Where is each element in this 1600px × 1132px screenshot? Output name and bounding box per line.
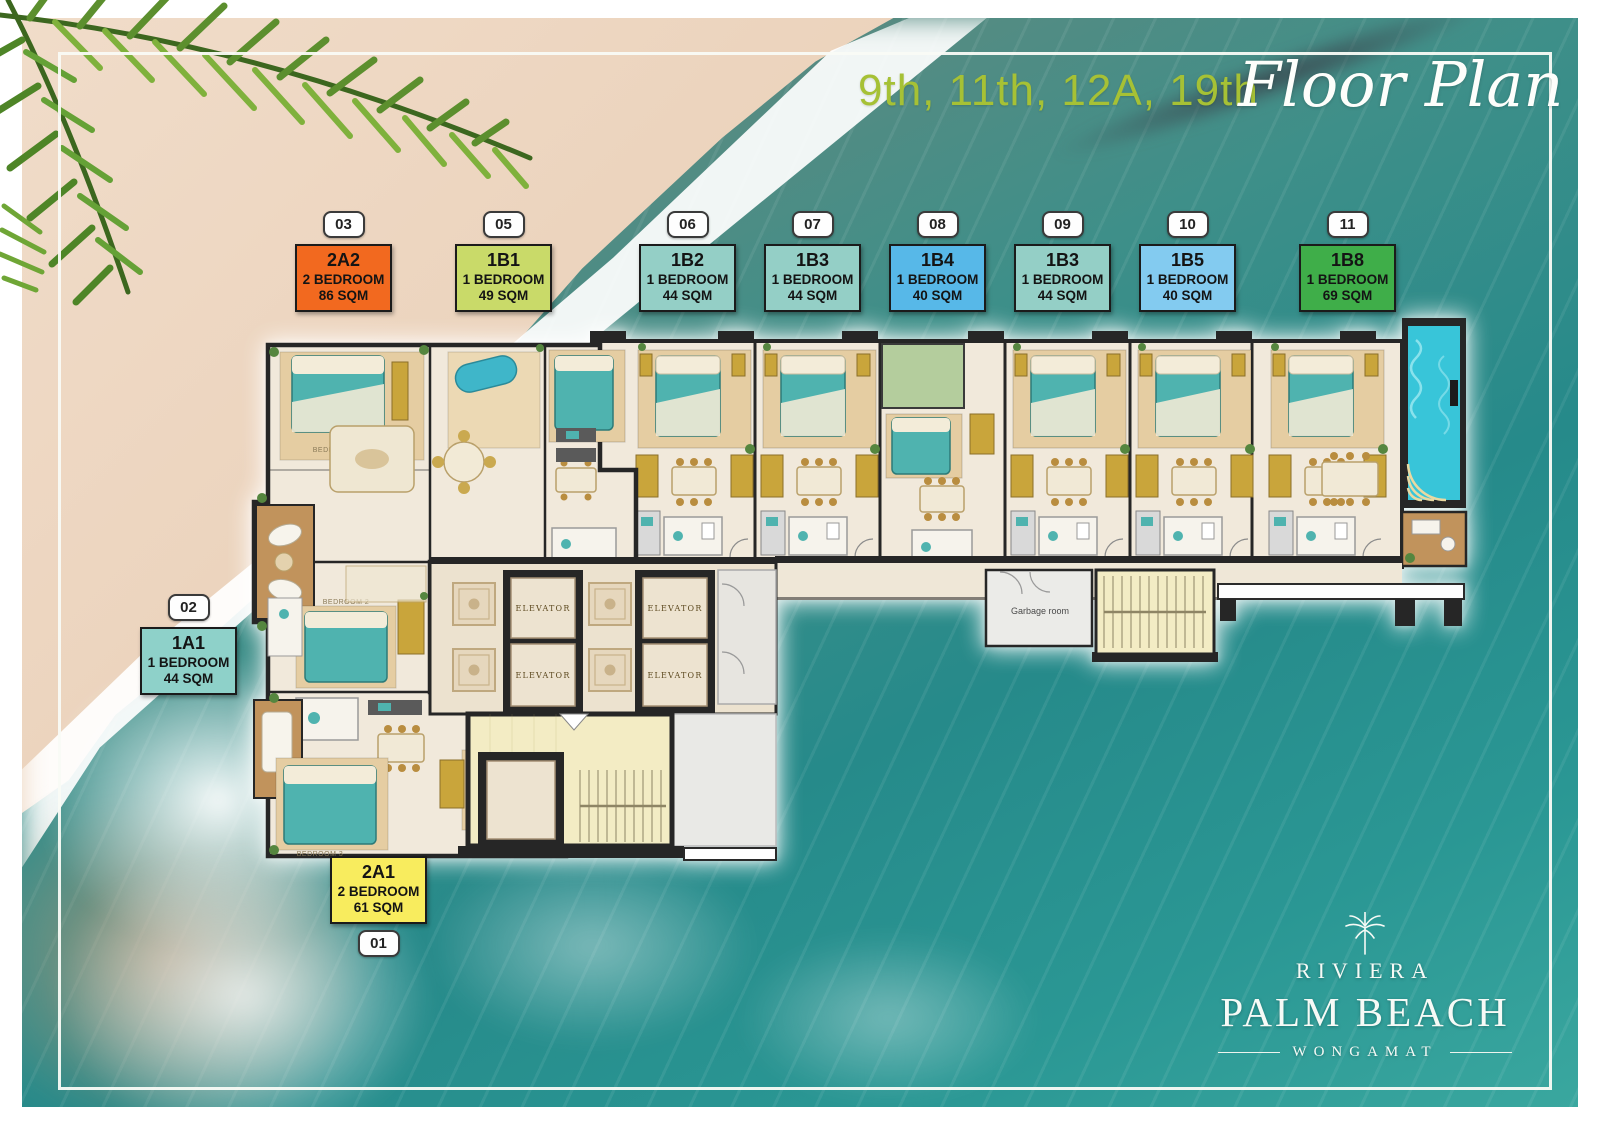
brand-logo: RIVIERA PALM BEACH WONGAMAT [1225,912,1505,1061]
unit-number-badge: 06 [667,211,709,238]
unit-label-03: 03 2A2 2 BEDROOM 86 SQM [295,211,392,312]
floor-plan-poster: Garbage room BEDROOM 1 [0,0,1600,1132]
palm-logo-icon [1342,912,1388,956]
garbage-room-label: Garbage room [1011,606,1069,616]
swimming-pool [1402,318,1466,566]
unit-label-07: 07 1B3 1 BEDROOM 44 SQM [764,211,861,312]
unit-info-box: 2A2 2 BEDROOM 86 SQM [295,244,392,312]
unit-number-badge: 05 [483,211,525,238]
elevator-core: ELEVATOR ELEVATOR ELEVATOR ELEVATOR ELEV… [430,557,776,860]
unit-number-badge: 02 [168,594,210,621]
unit-info-box: 1B2 1 BEDROOM 44 SQM [639,244,736,312]
elevator-label: ELEVATOR [515,604,570,613]
unit-label-10: 10 1B5 1 BEDROOM 40 SQM [1139,211,1236,312]
elevator-label: ELEVATOR [515,671,570,680]
stairwell-right [1092,570,1218,662]
page-title-script: Floor Plan [1238,48,1563,121]
unit-number-badge: 03 [323,211,365,238]
unit-info-box: 1B8 1 BEDROOM 69 SQM [1299,244,1396,312]
unit-info-box: 1A1 1 BEDROOM 44 SQM [140,627,237,695]
unit-info-box: 1B3 1 BEDROOM 44 SQM [764,244,861,312]
unit-label-09: 09 1B3 1 BEDROOM 44 SQM [1014,211,1111,312]
logo-location-text: WONGAMAT [1218,1044,1511,1061]
elevator-label: ELEVATOR [647,671,702,680]
unit-label-11: 11 1B8 1 BEDROOM 69 SQM [1299,211,1396,312]
logo-brand-text: RIVIERA [1296,958,1434,984]
unit-number-badge: 01 [358,930,400,957]
unit-label-05: 05 1B1 1 BEDROOM 49 SQM [455,211,552,312]
page-title-floors: 9th, 11th, 12A, 19th [858,66,1259,116]
unit-info-box: 1B1 1 BEDROOM 49 SQM [455,244,552,312]
unit-label-02: 02 1A1 1 BEDROOM 44 SQM [140,594,237,695]
unit-info-box: 1B5 1 BEDROOM 40 SQM [1139,244,1236,312]
logo-name-text: PALM BEACH [1220,988,1509,1036]
unit-number-badge: 07 [792,211,834,238]
unit-number-badge: 08 [917,211,959,238]
top-units-plan [590,331,1402,567]
unit-info-box: 1B4 1 BEDROOM 40 SQM [889,244,986,312]
garbage-room: Garbage room [986,570,1092,646]
unit-info-box: 1B3 1 BEDROOM 44 SQM [1014,244,1111,312]
unit-info-box: 2A1 2 BEDROOM 61 SQM [330,856,427,924]
unit-number-badge: 09 [1042,211,1084,238]
unit-number-badge: 11 [1327,211,1369,238]
unit-label-06: 06 1B2 1 BEDROOM 44 SQM [639,211,736,312]
unit-label-01: 2A1 2 BEDROOM 61 SQM 01 [330,856,427,957]
elevator-label: ELEVATOR [647,604,702,613]
unit-label-08: 08 1B4 1 BEDROOM 40 SQM [889,211,986,312]
unit-number-badge: 10 [1167,211,1209,238]
